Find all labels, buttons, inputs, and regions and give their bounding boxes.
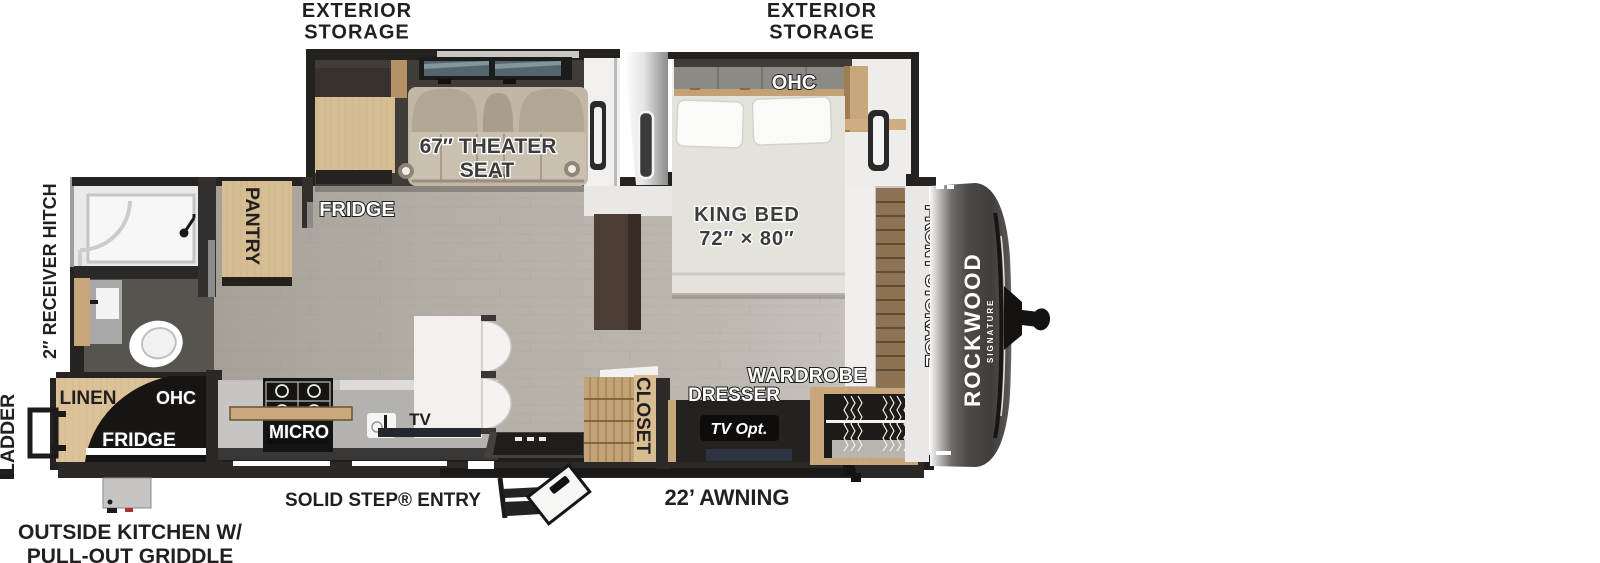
svg-text:EXTERIOR: EXTERIOR [302, 0, 412, 22]
svg-text:WARDROBE: WARDROBE [748, 365, 867, 387]
svg-text:SOLID STEP® ENTRY: SOLID STEP® ENTRY [285, 490, 481, 511]
svg-text:72″ × 80″: 72″ × 80″ [699, 228, 794, 250]
svg-text:DRESSER: DRESSER [688, 385, 780, 406]
svg-text:PANTRY: PANTRY [241, 187, 263, 265]
svg-text:ROCKWOOD: ROCKWOOD [960, 252, 985, 407]
svg-text:STORAGE: STORAGE [769, 22, 875, 44]
svg-text:2″ RECEIVER HITCH: 2″ RECEIVER HITCH [40, 183, 60, 359]
svg-text:LINEN: LINEN [60, 388, 117, 409]
svg-text:OHC: OHC [156, 388, 196, 408]
svg-text:TV: TV [409, 410, 431, 429]
svg-text:OUTSIDE KITCHEN W/: OUTSIDE KITCHEN W/ [18, 521, 242, 544]
svg-text:FRIDGE: FRIDGE [102, 429, 176, 451]
svg-text:CLOSET: CLOSET [632, 377, 653, 454]
svg-text:SEAT: SEAT [460, 159, 515, 182]
svg-text:KING BED: KING BED [694, 204, 800, 226]
svg-text:PULL-OUT GRIDDLE: PULL-OUT GRIDDLE [27, 545, 233, 563]
svg-text:SIGNATURE: SIGNATURE [986, 298, 995, 363]
svg-text:MICRO: MICRO [269, 422, 329, 442]
svg-text:LADDER: LADDER [0, 394, 19, 475]
svg-text:67″ THEATER: 67″ THEATER [420, 135, 557, 158]
svg-text:22’ AWNING: 22’ AWNING [664, 485, 789, 510]
svg-text:OHC: OHC [772, 72, 816, 94]
svg-text:STORAGE: STORAGE [304, 22, 410, 44]
svg-text:EXTERIOR: EXTERIOR [767, 0, 877, 22]
svg-text:FRIDGE: FRIDGE [319, 199, 395, 221]
svg-text:TV Opt.: TV Opt. [711, 421, 768, 438]
